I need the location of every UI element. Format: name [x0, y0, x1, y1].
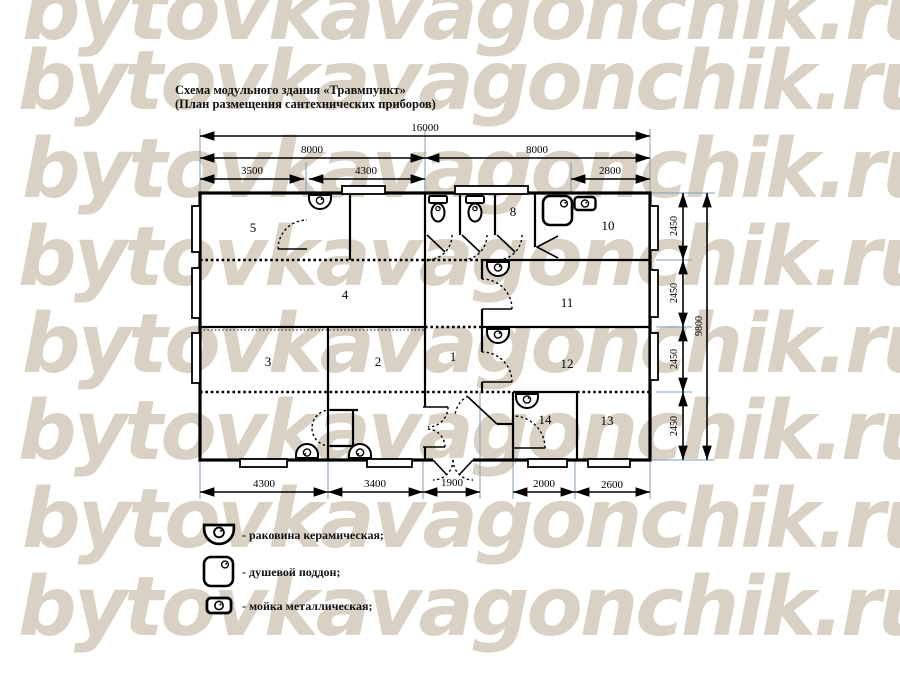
legend-label: - душевой поддон; [242, 565, 340, 580]
shower-tray-icon [543, 196, 572, 225]
toilet-icon [429, 196, 447, 222]
dim-module-2: 2450 [669, 283, 680, 303]
dim-right-half: 8000 [526, 144, 549, 156]
dim-4300-bottom: 4300 [253, 478, 276, 490]
room-label-5: 5 [250, 220, 257, 235]
room-labels: 5 8 10 4 11 1 12 3 2 14 13 [250, 204, 615, 428]
metal-sink-icon [200, 594, 240, 618]
extension-lines [200, 129, 715, 499]
ceramic-sink-icon [200, 520, 240, 550]
legend-item-shower-tray: - душевой поддон; [200, 554, 384, 590]
dim-2600: 2600 [601, 479, 624, 491]
room-label-1: 1 [450, 349, 457, 364]
dim-module-4: 2450 [669, 416, 680, 436]
legend: - раковина керамическая; - душевой поддо… [200, 520, 384, 622]
legend-label: - раковина керамическая; [242, 528, 384, 543]
room-label-14: 14 [539, 412, 553, 427]
toilet-icon [466, 196, 484, 222]
dim-3400: 3400 [364, 478, 387, 490]
room-label-12: 12 [561, 356, 574, 371]
dim-total-width: 16000 [411, 122, 439, 134]
dim-2800: 2800 [599, 165, 622, 177]
room-label-2: 2 [375, 354, 382, 369]
dim-1900: 1900 [441, 477, 464, 489]
dimension-lines [200, 136, 707, 492]
room-label-8: 8 [510, 204, 517, 219]
dim-module-1: 2450 [669, 216, 680, 236]
title-line2: (План размещения сантехнических приборов… [175, 98, 436, 112]
dim-2000: 2000 [533, 478, 556, 490]
shower-tray-icon [200, 554, 240, 590]
title-line1: Схема модульного здания «Травмпункт» [175, 84, 436, 98]
dim-left-half: 8000 [301, 144, 324, 156]
room-label-13: 13 [601, 413, 614, 428]
floor-plan-svg: 16000 8000 8000 3500 4300 2800 4300 3400… [0, 0, 900, 675]
dim-4300-top: 4300 [355, 165, 378, 177]
room-label-4: 4 [342, 287, 349, 302]
dim-module-3: 2450 [669, 349, 680, 369]
dim-total-height: 9800 [694, 316, 705, 336]
room-label-11: 11 [561, 295, 574, 310]
ceramic-sink-icon [309, 195, 331, 209]
drawing-title: Схема модульного здания «Травмпункт» (Пл… [175, 84, 436, 111]
room-label-3: 3 [265, 354, 272, 369]
ceramic-sink-icon [349, 444, 371, 458]
walls [200, 193, 650, 460]
page: bytovkavagonchik.ru bytovkavagonchik.ru … [0, 0, 900, 675]
metal-sink-icon [575, 197, 596, 210]
room-label-10: 10 [602, 218, 615, 233]
ceramic-sink-icon [296, 444, 318, 458]
legend-item-ceramic-sink: - раковина керамическая; [200, 520, 384, 550]
ceramic-sink-icon [487, 329, 509, 343]
legend-label: - мойка металлическая; [242, 599, 372, 614]
dimension-labels: 16000 8000 8000 3500 4300 2800 4300 3400… [241, 122, 705, 491]
dim-3500: 3500 [241, 165, 264, 177]
ceramic-sink-icon [516, 394, 538, 408]
ceramic-sink-icon [487, 262, 509, 276]
legend-item-metal-sink: - мойка металлическая; [200, 594, 384, 618]
